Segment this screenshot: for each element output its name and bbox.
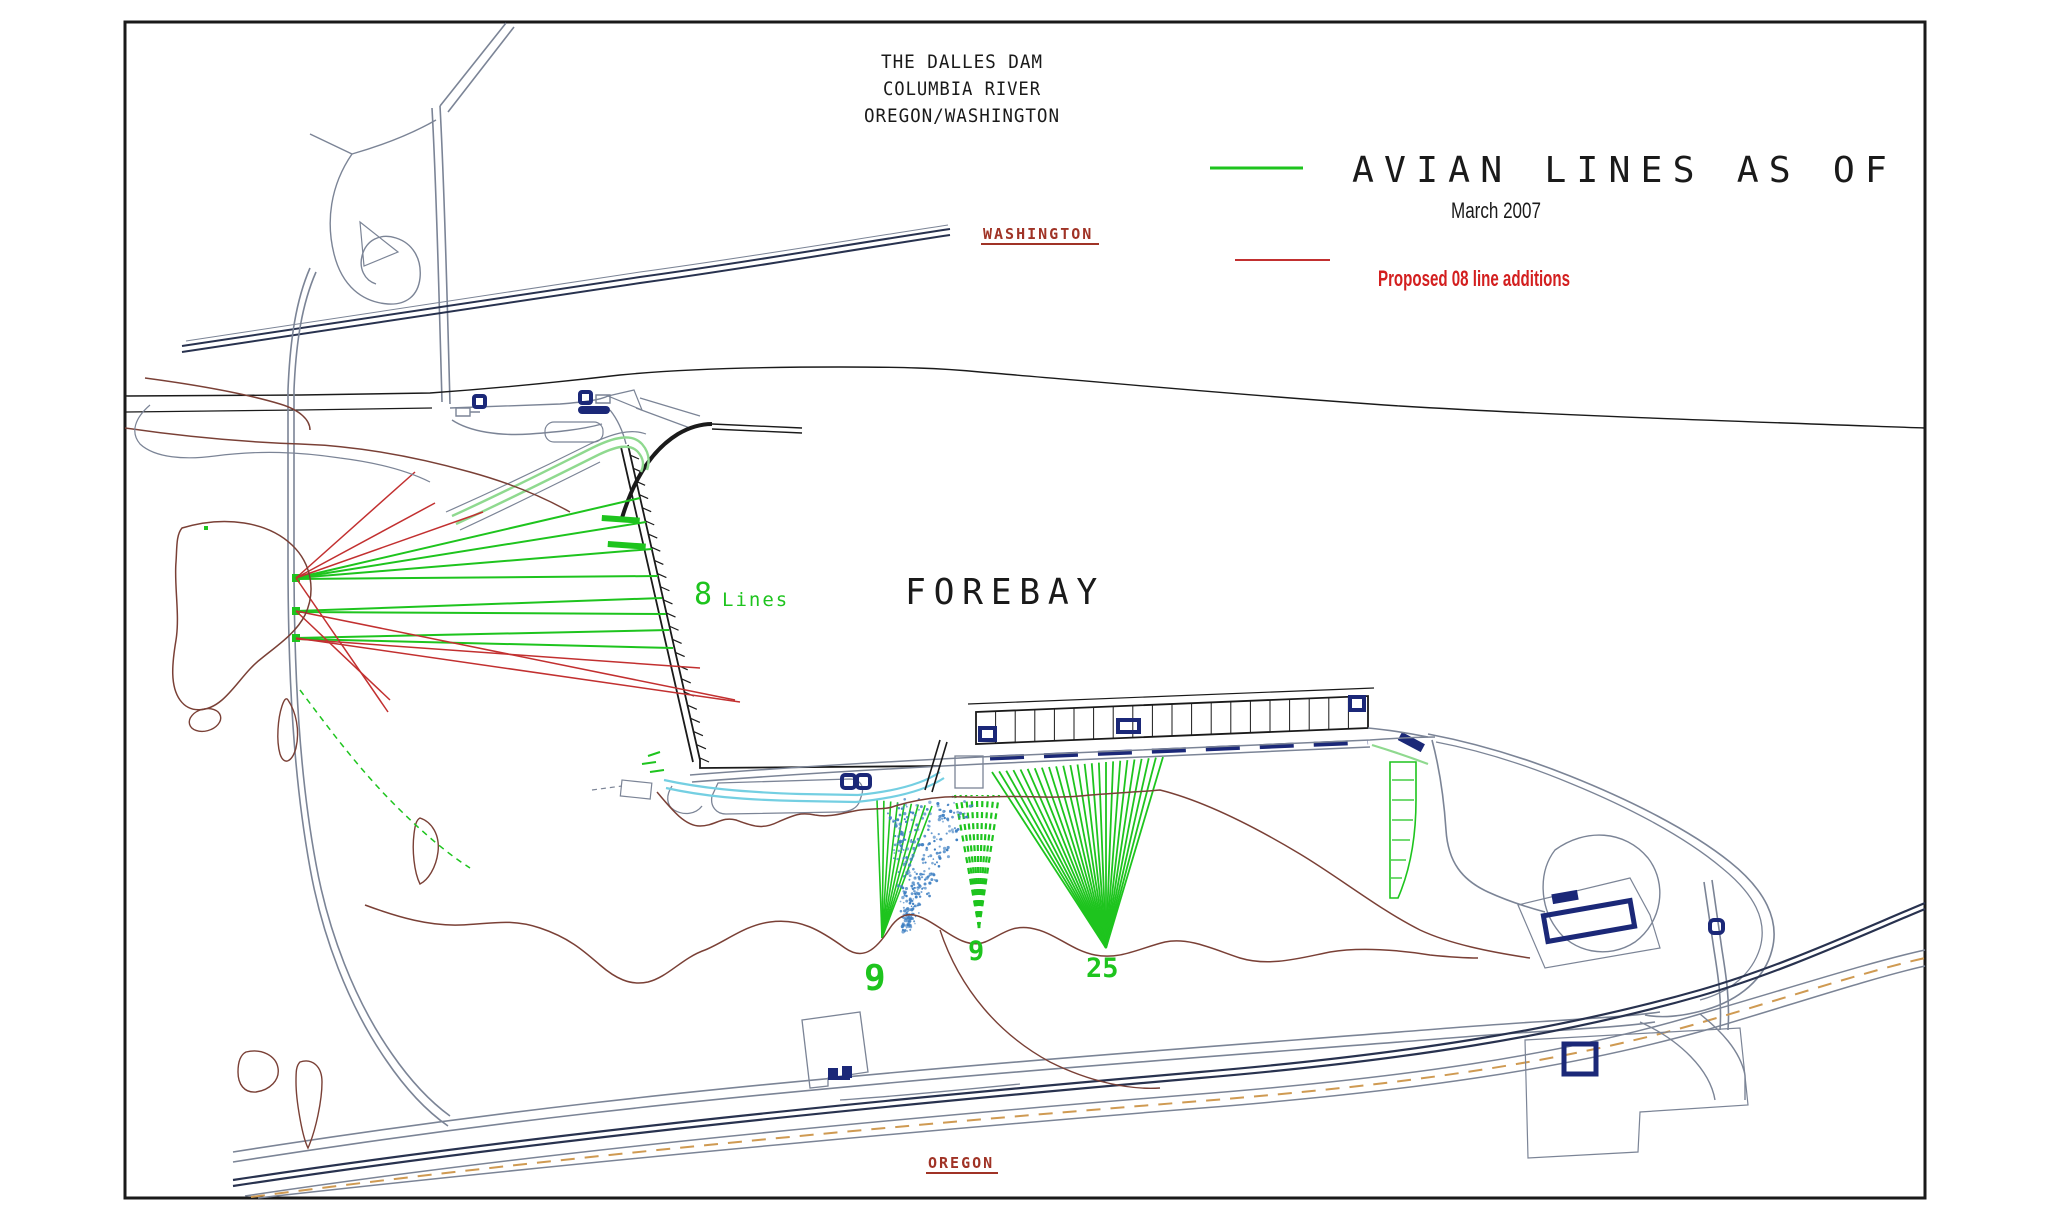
title-line1: THE DALLES DAM [881, 51, 1043, 73]
forebay-label: FOREBAY [905, 572, 1105, 613]
title-line3: OREGON/WASHINGTON [864, 105, 1060, 127]
legend-avian-title: AVIAN LINES AS OF [1352, 150, 1897, 191]
legend-avian-date: March 2007 [1451, 198, 1541, 223]
oregon-label: OREGON [928, 1154, 994, 1172]
legend-proposed-label: Proposed 08 line additions [1378, 266, 1570, 291]
dalles-dam-avian-map: THE DALLES DAM COLUMBIA RIVER OREGON/WAS… [0, 0, 2050, 1222]
title-line2: COLUMBIA RIVER [883, 78, 1041, 100]
west-fan-count: 9 [864, 958, 886, 999]
title-block: THE DALLES DAM COLUMBIA RIVER OREGON/WAS… [864, 51, 1060, 127]
washington-label: WASHINGTON [983, 225, 1093, 243]
spillway-lines-word: Lines [722, 589, 789, 611]
middle-fan-count: 9 [968, 936, 984, 967]
map-canvas: THE DALLES DAM COLUMBIA RIVER OREGON/WAS… [0, 0, 2050, 1222]
east-fan-count: 25 [1086, 953, 1119, 984]
spillway-lines-count: 8 [694, 577, 712, 612]
